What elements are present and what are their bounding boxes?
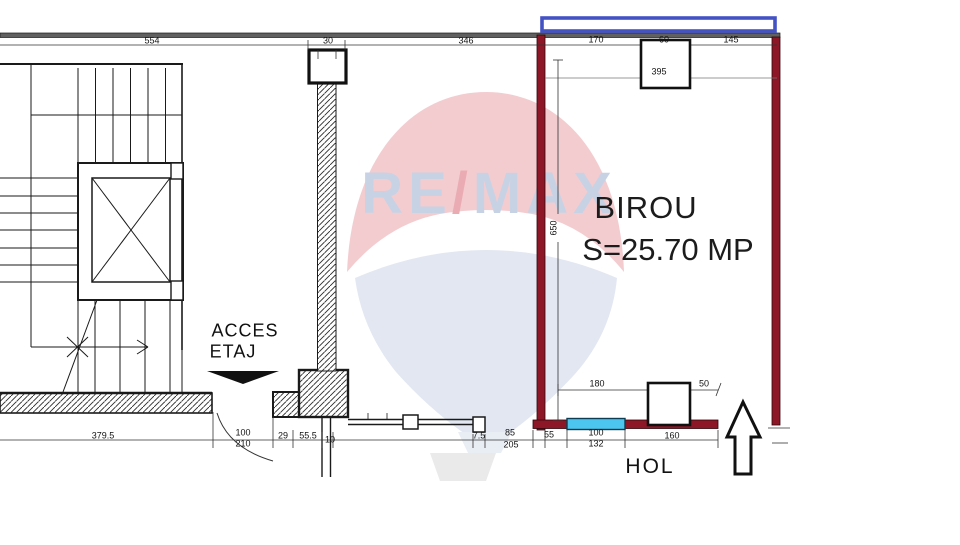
dim-100-glass: 100 [588, 429, 603, 438]
entrance-up-arrow-icon [727, 402, 760, 474]
etaj-label: ETAJ [210, 342, 257, 363]
dim-55-5: 55.5 [299, 432, 317, 441]
room-column-top [641, 40, 690, 88]
dim-60: 60 [659, 36, 669, 45]
dim-180: 180 [589, 380, 604, 389]
structural-column [309, 50, 346, 83]
bottom-left-wall [0, 393, 212, 413]
dim-170: 170 [588, 36, 603, 45]
plan-linework [0, 0, 960, 545]
partition-wall-strip [318, 83, 337, 371]
balcony-blue-bar [542, 18, 775, 31]
door-jamb-step [273, 392, 300, 417]
side-flight-treads [0, 178, 78, 282]
dim-55: 55 [544, 431, 554, 440]
dim-85: 85 [505, 429, 515, 438]
hol-label: HOL [625, 455, 674, 479]
room-wall-left [537, 35, 545, 430]
room-name-label: BIROU [594, 190, 697, 226]
dim-346: 346 [458, 37, 473, 46]
pier-block [299, 370, 348, 417]
acces-etaj-arrow-icon [207, 371, 279, 384]
room-column-bottom [648, 383, 690, 425]
stair-direction-arrow [31, 300, 148, 392]
dim-100-door: 100 [235, 429, 250, 438]
dim-132: 132 [588, 440, 603, 449]
room-wall-right [772, 37, 780, 425]
dim-379-5: 379.5 [92, 432, 115, 441]
dim-50: 50 [699, 380, 709, 389]
hatched-walls [0, 50, 348, 477]
dim-30: 30 [323, 37, 333, 46]
floor-plan: RE/MAX [0, 0, 960, 545]
acces-label: ACCES [211, 321, 278, 342]
dim-160: 160 [664, 432, 679, 441]
upper-flight-treads [31, 68, 182, 163]
dim-10: 10 [325, 436, 335, 445]
dim-395: 395 [651, 68, 666, 77]
dim-210: 210 [235, 440, 250, 449]
staircase [0, 64, 183, 393]
dim-7-5: 7.5 [473, 432, 486, 441]
elevator-shaft [78, 163, 183, 300]
dim-650: 650 [550, 220, 559, 235]
dim-205: 205 [503, 441, 518, 450]
dim-29: 29 [278, 432, 288, 441]
glazed-partition [348, 413, 485, 432]
dim-554: 554 [144, 37, 159, 46]
dim-145: 145 [723, 36, 738, 45]
room-area-label: S=25.70 MP [582, 232, 753, 268]
